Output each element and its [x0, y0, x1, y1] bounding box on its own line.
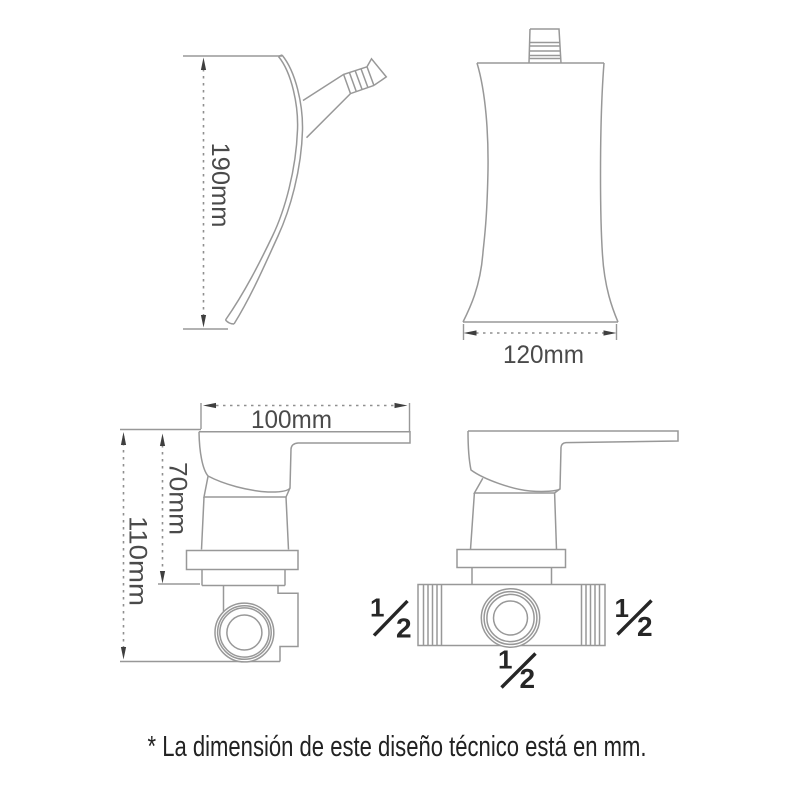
- svg-text:1: 1: [615, 593, 629, 623]
- svg-text:70mm: 70mm: [164, 462, 192, 535]
- svg-text:2: 2: [396, 613, 412, 644]
- svg-text:2: 2: [637, 611, 653, 642]
- svg-text:120mm: 120mm: [503, 341, 584, 369]
- svg-text:110mm: 110mm: [124, 516, 152, 606]
- svg-text:100mm: 100mm: [251, 406, 332, 434]
- svg-text:190mm: 190mm: [206, 143, 234, 228]
- svg-text:1: 1: [370, 593, 384, 623]
- svg-text:* La dimensión de este diseño: * La dimensión de este diseño técnico es…: [148, 731, 647, 763]
- svg-text:1: 1: [498, 645, 512, 675]
- svg-text:2: 2: [520, 663, 536, 694]
